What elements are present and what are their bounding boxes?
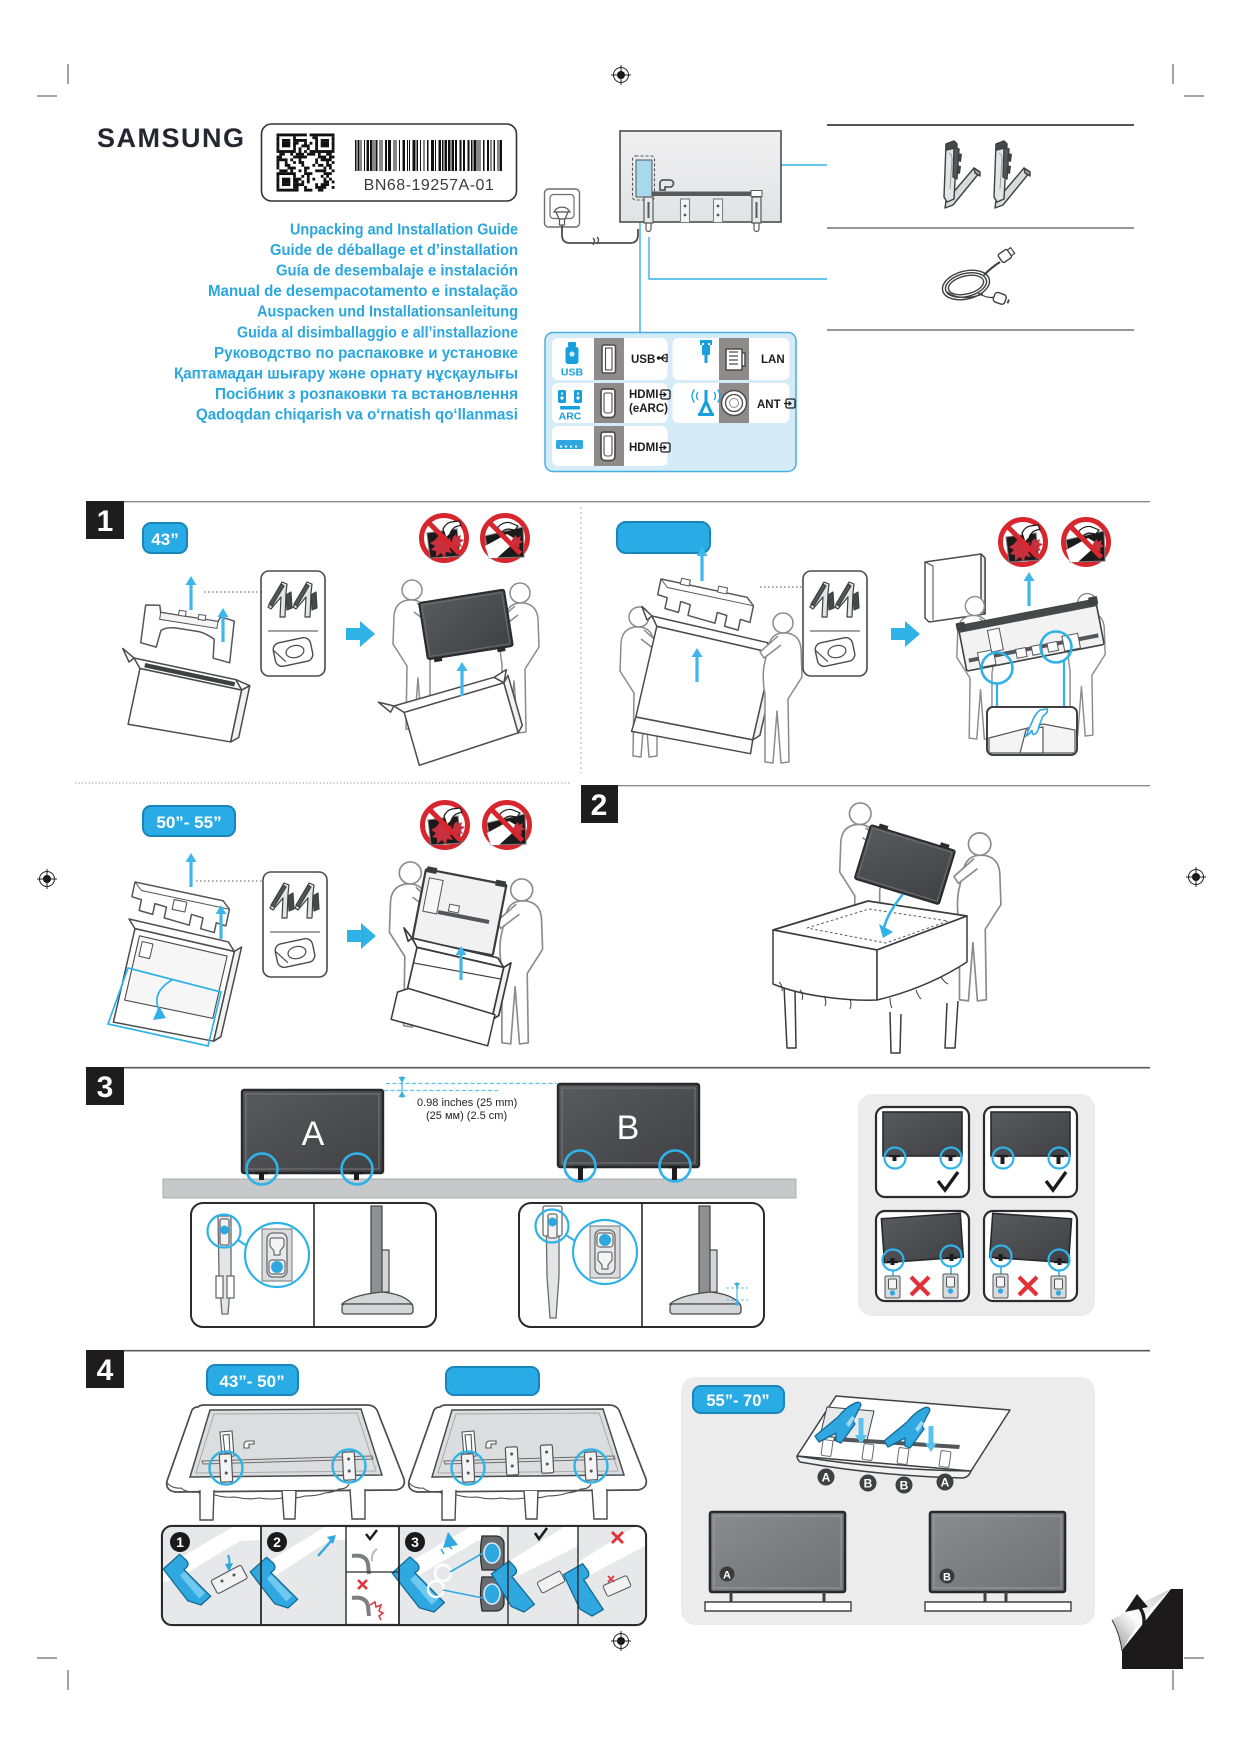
svg-text:Руководство по распаковке и ус: Руководство по распаковке и установке — [214, 345, 518, 362]
svg-text:Guide de déballage et d’instal: Guide de déballage et d’installation — [270, 242, 518, 259]
svg-text:3: 3 — [97, 1071, 114, 1104]
svg-text:HDMI: HDMI — [629, 442, 658, 454]
svg-text:SAMSUNG: SAMSUNG — [97, 123, 246, 153]
svg-text:B: B — [943, 1572, 951, 1584]
svg-text:1: 1 — [97, 505, 114, 538]
svg-text:2: 2 — [591, 789, 608, 822]
svg-text:Manual de desempacotamento e i: Manual de desempacotamento e instalação — [208, 283, 518, 300]
svg-text:2: 2 — [273, 1534, 281, 1550]
svg-text:0.98 inches (25 mm): 0.98 inches (25 mm) — [417, 1097, 517, 1109]
svg-text:ANT: ANT — [757, 399, 781, 411]
svg-text:USB: USB — [631, 354, 655, 366]
svg-text:Qadoqdan chiqarish va o‘rnatis: Qadoqdan chiqarish va o‘rnatish qo‘llanm… — [196, 407, 518, 424]
svg-text:4: 4 — [97, 1354, 114, 1387]
svg-text:LAN: LAN — [761, 354, 785, 366]
svg-text:Guía de desembalaje e instalac: Guía de desembalaje e instalación — [276, 263, 518, 280]
svg-text:43”: 43” — [151, 530, 178, 549]
svg-text:Guida al disimballaggio e all’: Guida al disimballaggio e all’installazi… — [237, 324, 518, 341]
svg-text:USB: USB — [561, 367, 584, 379]
svg-text:A: A — [941, 1476, 950, 1490]
svg-text:B: B — [900, 1479, 909, 1493]
svg-text:3: 3 — [411, 1534, 419, 1550]
svg-text:BN68-19257A-01: BN68-19257A-01 — [364, 177, 495, 194]
svg-text:55”- 70”: 55”- 70” — [706, 1392, 769, 1410]
svg-text:B: B — [617, 1109, 640, 1147]
svg-text:Auspacken und Installationsanl: Auspacken und Installationsanleitung — [257, 304, 518, 321]
svg-text:Unpacking and Installation Gui: Unpacking and Installation Guide — [290, 222, 518, 239]
svg-text:(25 мм) (2.5 cm): (25 мм) (2.5 cm) — [426, 1110, 507, 1122]
svg-text:A: A — [822, 1471, 831, 1485]
svg-text:43”- 50”: 43”- 50” — [219, 1372, 284, 1391]
svg-text:A: A — [302, 1115, 325, 1153]
svg-text:(eARC): (eARC) — [629, 403, 668, 415]
svg-text:B: B — [864, 1477, 873, 1491]
svg-text:Посібник з розпаковки та встан: Посібник з розпаковки та встановлення — [215, 386, 518, 403]
svg-text:50”- 55”: 50”- 55” — [156, 813, 221, 832]
svg-text:Қаптамадан шығару және орнату: Қаптамадан шығару және орнату нұсқаулығы — [174, 365, 518, 382]
svg-text:1: 1 — [176, 1534, 184, 1550]
svg-text:ARC: ARC — [559, 411, 582, 423]
svg-text:HDMI: HDMI — [629, 389, 658, 401]
svg-text:A: A — [723, 1570, 731, 1582]
